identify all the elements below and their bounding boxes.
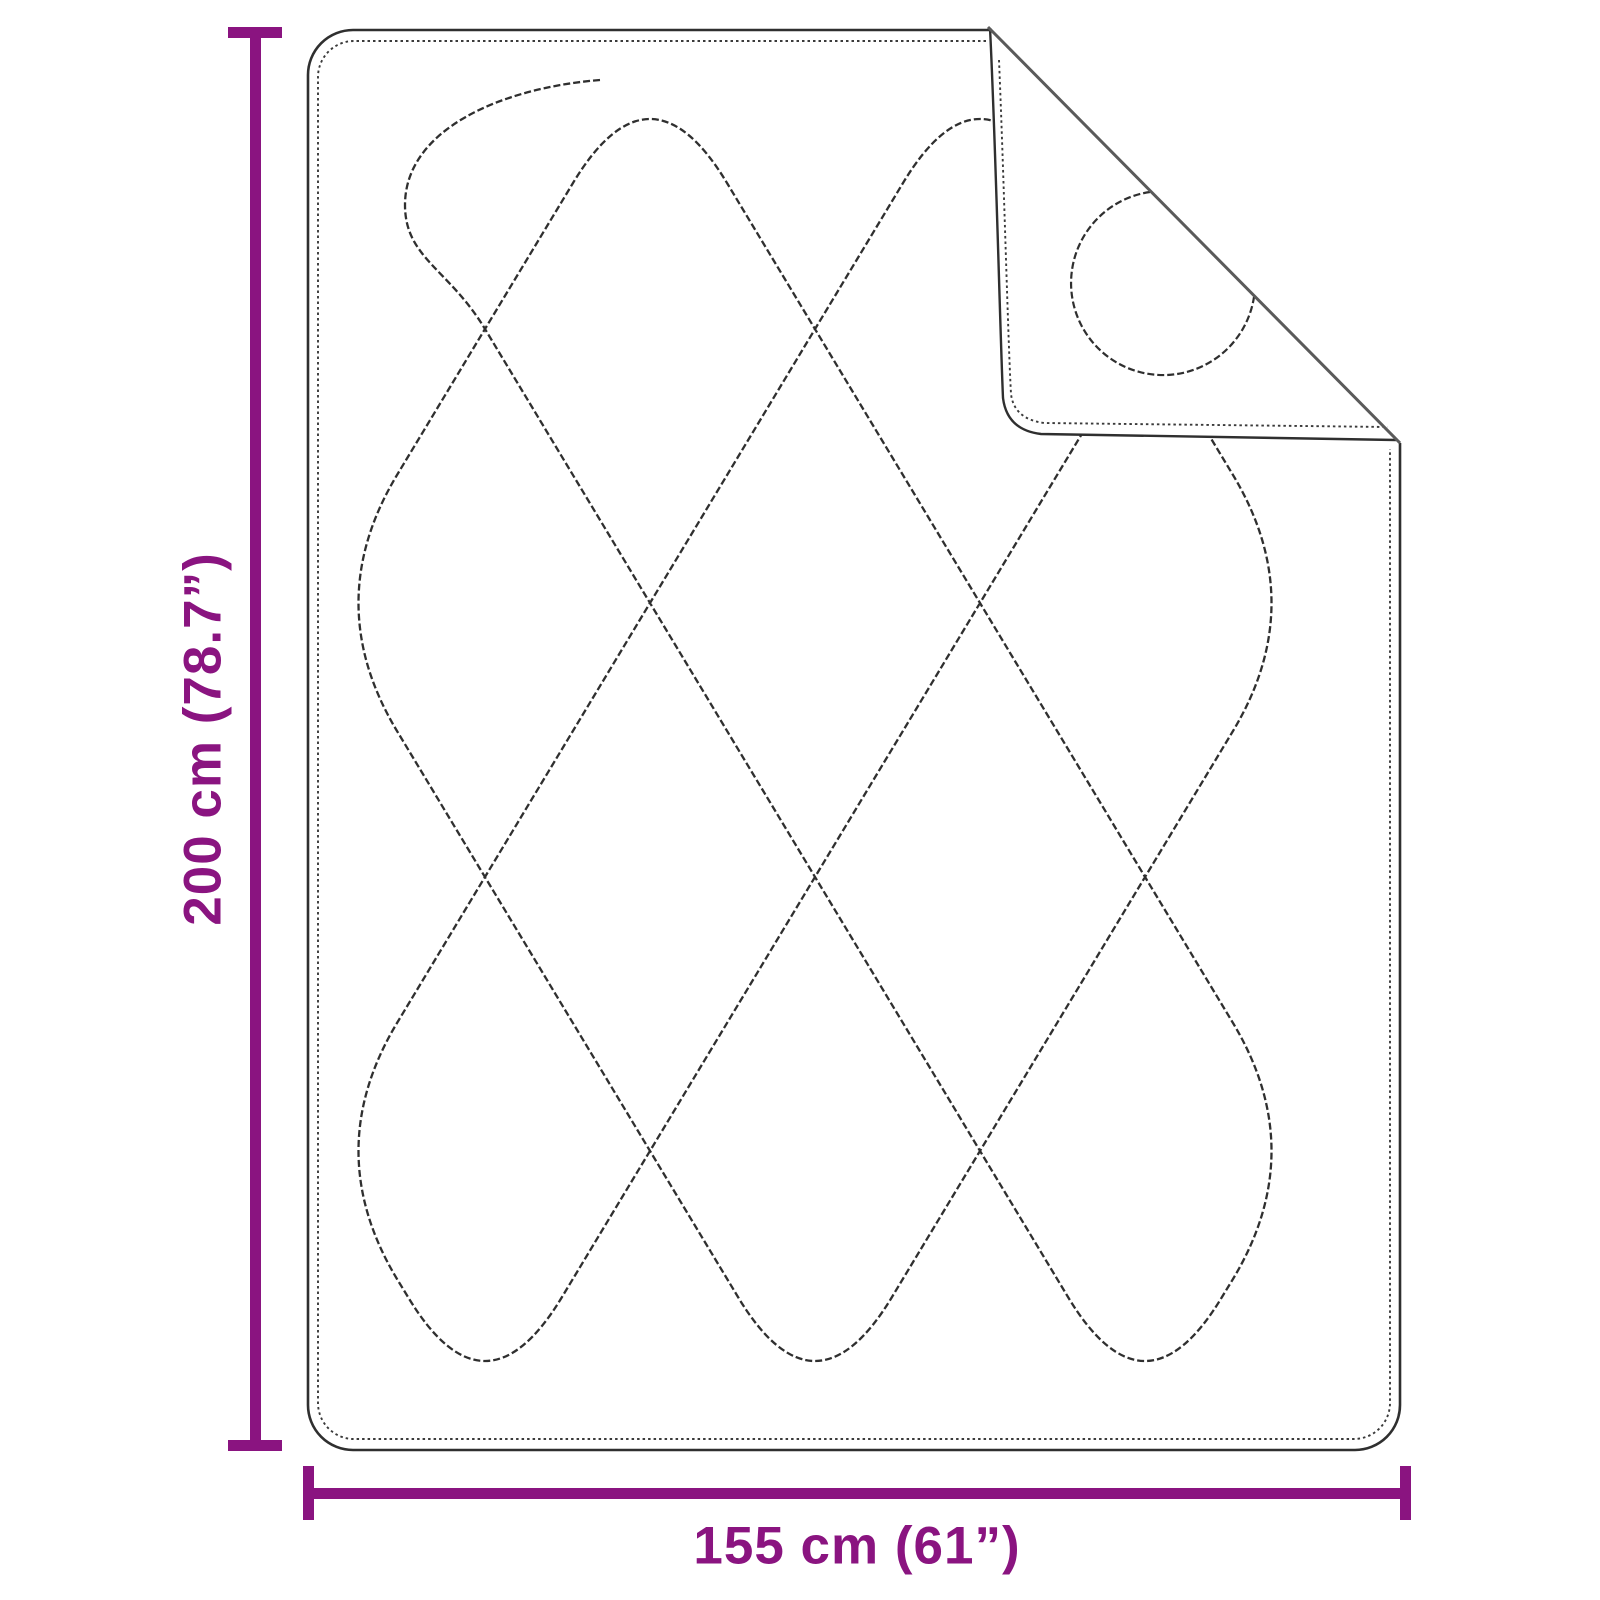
- width-dimension-label: 155 cm (61”): [693, 1516, 1020, 1577]
- blanket-outline: [308, 30, 1400, 1450]
- width-dimension-cap-left: [303, 1466, 314, 1520]
- blanket-dimension-diagram: 200 cm (78.7”) 155 cm (61”): [0, 0, 1600, 1600]
- height-dimension-label: 200 cm (78.7”): [173, 552, 234, 925]
- height-dimension-cap-bottom: [228, 1440, 282, 1451]
- height-dimension-cap-top: [228, 27, 282, 38]
- width-dimension-cap-right: [1400, 1466, 1411, 1520]
- blanket-drawing: [0, 0, 1600, 1600]
- height-dimension-line: [250, 32, 261, 1446]
- blanket-border-stitching: [318, 41, 1390, 1439]
- width-dimension-line: [308, 1488, 1406, 1499]
